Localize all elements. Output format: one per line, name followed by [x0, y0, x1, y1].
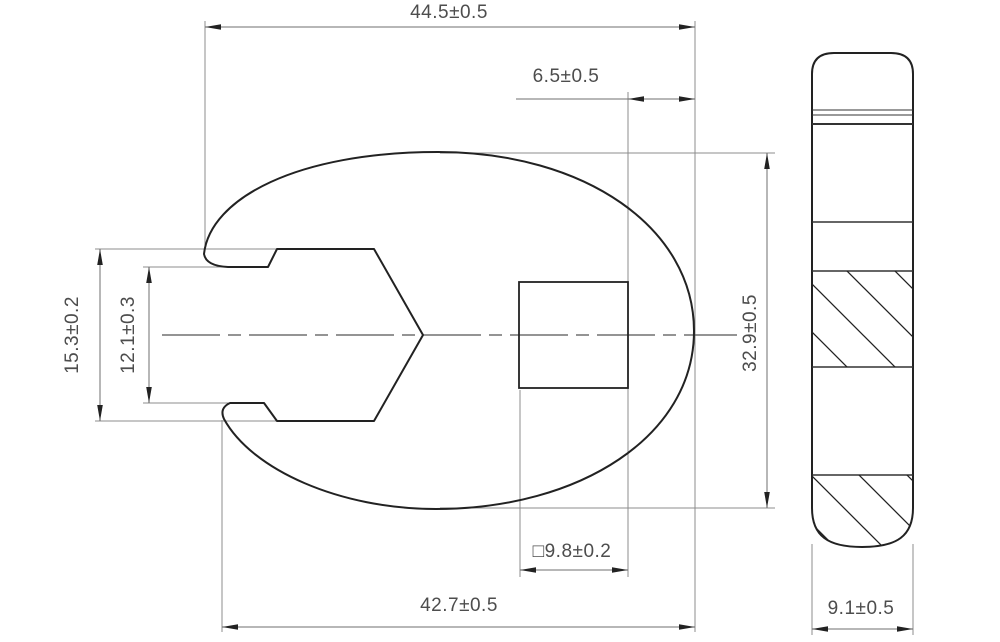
dim-drive-edge-offset-label: 6.5±0.5 [533, 66, 600, 88]
dim-thickness-label: 9.1±0.5 [828, 598, 895, 620]
dim-jaw-outer-width-label: 15.3±0.2 [62, 296, 84, 374]
dim-head-height-label: 32.9±0.5 [740, 294, 762, 372]
dim-lower-width-label: 42.7±0.5 [420, 595, 498, 617]
dim-overall-width-label: 44.5±0.5 [410, 2, 488, 24]
side-view [812, 53, 913, 547]
drawing-geometry [0, 0, 1000, 642]
dim-square-drive-label: □9.8±0.2 [533, 541, 612, 563]
side-view-hatching [812, 271, 913, 547]
dimension-arrows [97, 24, 913, 632]
dim-jaw-opening-label: 12.1±0.3 [118, 296, 140, 374]
front-view-outline [204, 152, 694, 509]
technical-drawing-canvas: 44.5±0.5 6.5±0.5 15.3±0.2 12.1±0.3 32.9±… [0, 0, 1000, 642]
extension-lines [95, 21, 913, 635]
